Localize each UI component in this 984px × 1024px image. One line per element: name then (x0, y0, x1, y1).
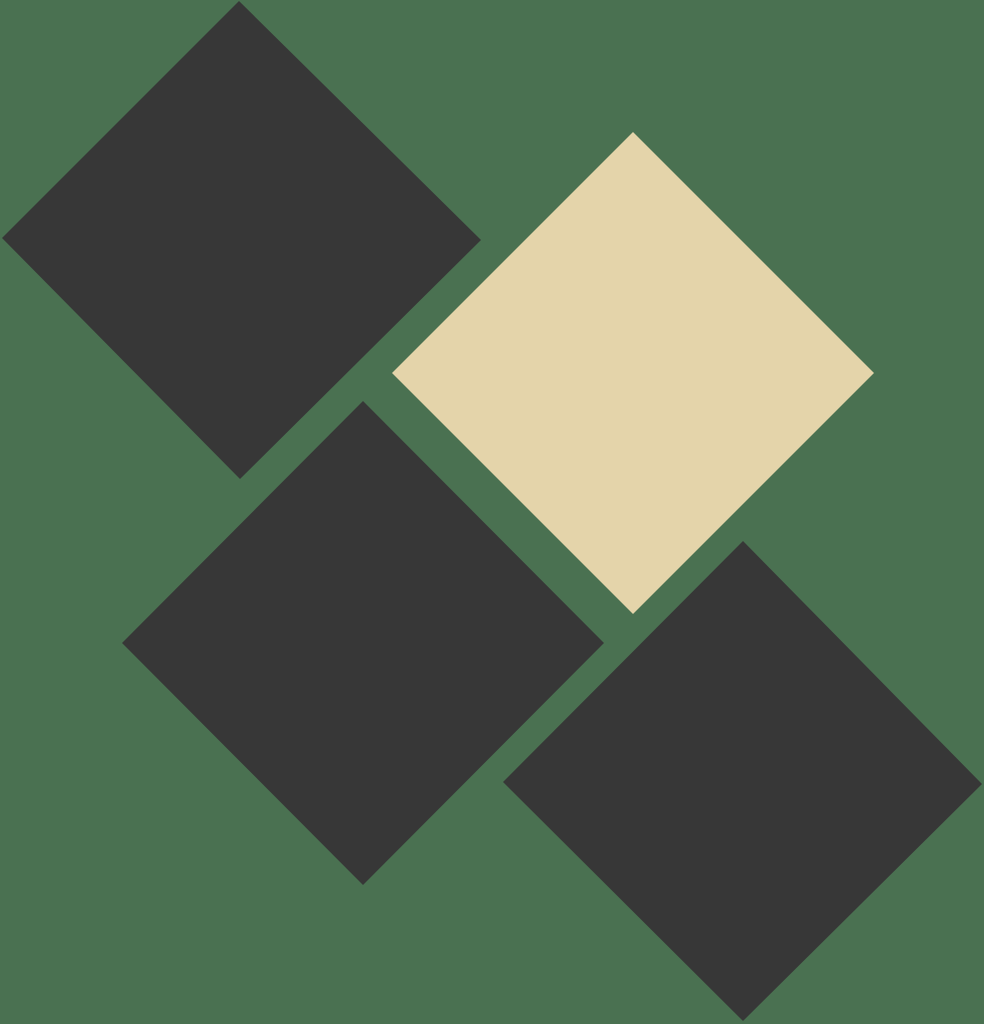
dark-diamond-top-left (2, 1, 481, 479)
canvas-background (0, 0, 984, 1024)
diamond-logo-graphic (0, 0, 984, 1024)
dark-diamond-bottom-right (503, 541, 982, 1021)
